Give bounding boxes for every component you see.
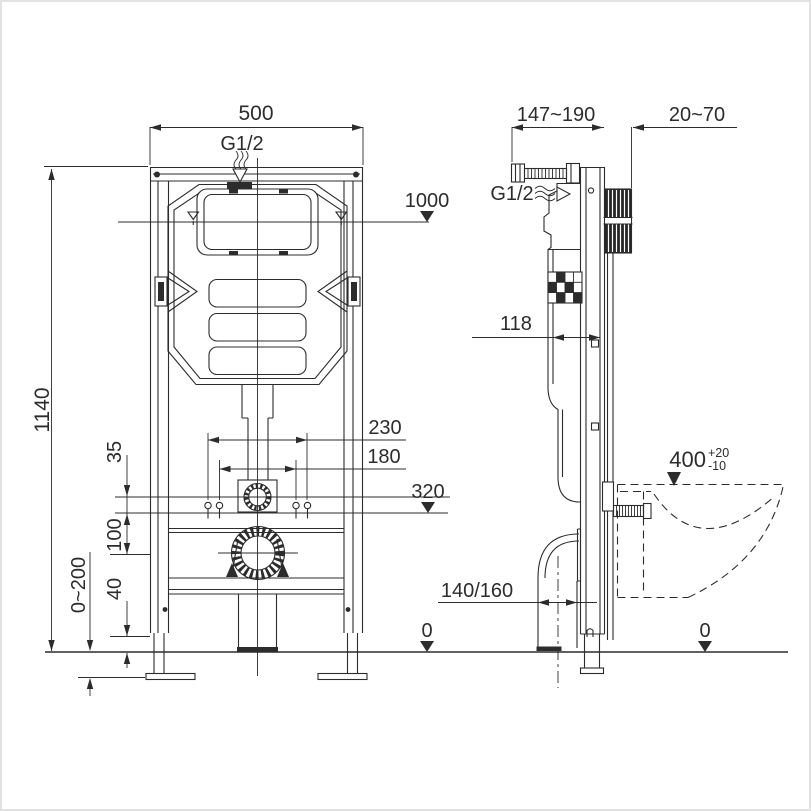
dim-bowl-tolerance-minus: -10 [708,459,726,473]
frame-bolt-left [163,607,168,612]
floor-zero-left: 0 [421,620,432,642]
dim-frame-height: 1140 [31,387,54,432]
dim-foot-40: 40 [104,578,126,600]
dim-inlet-thread-front: G1/2 [220,133,263,155]
dim-fixing-inner: 180 [367,446,400,468]
dim-cistern-depth: 118 [500,313,532,335]
dim-fixing-outer: 230 [368,417,401,439]
toilet-bowl-outline [618,485,784,598]
level-1000-marker [420,211,434,222]
technical-drawing: 500 G1/2 1000 1140 230 180 320 35 100 40… [0,0,811,811]
dim-bowl-height: 400 [669,447,706,472]
side-dimensions [420,124,737,652]
frame-screw-top-right [353,172,359,178]
dim-offset-100: 100 [104,518,126,551]
dim-frame-width: 500 [238,102,273,125]
inlet-arrow-icon [557,187,570,201]
dim-inlet-thread-side: G1/2 [490,183,533,205]
dim-flush-level: 1000 [405,190,450,212]
inlet-arrow-icon [233,169,247,182]
bowl-mounting-stud [603,482,652,519]
flush-mechanism-block [548,272,582,303]
side-cistern-profile [544,184,580,503]
dim-wall-range: 20~70 [669,104,725,126]
frame-screw-top-left [154,172,160,178]
bowl-height-marker [667,472,681,486]
dim-bowl-tolerance-plus: +20 [708,446,729,460]
dimension-labels: 500 G1/2 1000 1140 230 180 320 35 100 40… [31,102,729,642]
wall-bracket [604,189,633,640]
dim-depth-range: 147~190 [517,104,595,126]
drain-elbow [537,529,581,688]
front-inlet-symbol [227,151,252,189]
dim-outlet-height: 320 [411,481,444,503]
rail-hole [588,188,593,193]
floor-zero-right: 0 [699,620,710,642]
rail-clip-upper [592,340,599,347]
side-foot [585,634,600,668]
dim-foot-range: 0~200 [68,557,90,613]
rail-clip-lower [592,423,599,430]
installation-drawing-page: 500 G1/2 1000 1140 230 180 320 35 100 40… [0,0,811,811]
adjustable-feet [146,633,367,680]
inlet-connector [227,182,252,189]
side-view-rail [581,167,605,674]
drain-socket [218,527,298,580]
anchor-rods [608,253,614,640]
dim-drain-pipe: 140/160 [441,580,513,602]
frame-bolt-right [346,607,351,612]
inlet-thread-hatch [528,169,563,178]
dim-offset-35: 35 [104,441,126,463]
level-320-marker [421,502,435,513]
floor-zero-marker-right [698,641,712,652]
floor-zero-marker-left [420,641,434,652]
water-inlet-valve [512,164,580,184]
stud-thread-hatch [617,506,641,516]
